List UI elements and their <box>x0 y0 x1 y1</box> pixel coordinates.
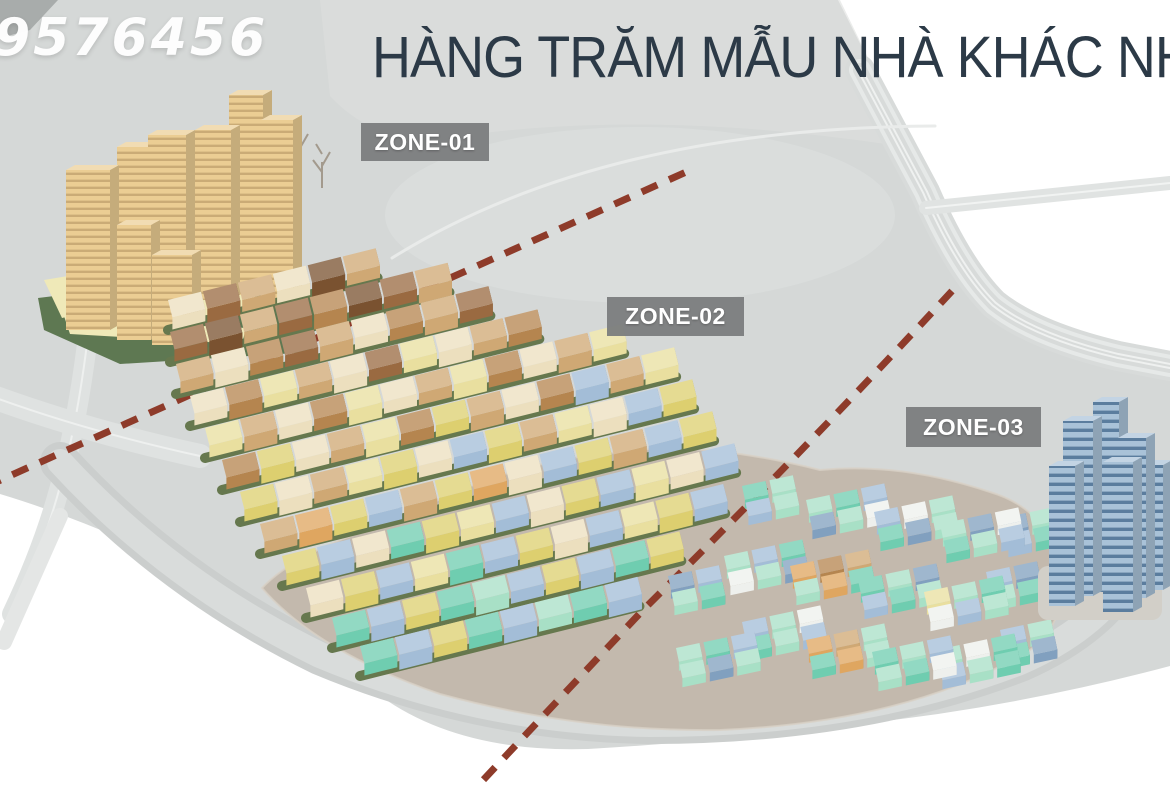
zone-01-label: ZONE-01 <box>361 123 489 161</box>
page-title: HÀNG TRĂM MẪU NHÀ KHÁC NHAU <box>372 24 1170 91</box>
zone-02-label: ZONE-02 <box>607 297 744 336</box>
watermark-phone-number: 9576456 <box>0 8 268 68</box>
zone-03-label: ZONE-03 <box>906 407 1041 447</box>
masterplan-rendering: 9576456 HÀNG TRĂM MẪU NHÀ KHÁC NHAU ZONE… <box>0 0 1170 785</box>
site-plan-3d-scene <box>0 0 1170 785</box>
